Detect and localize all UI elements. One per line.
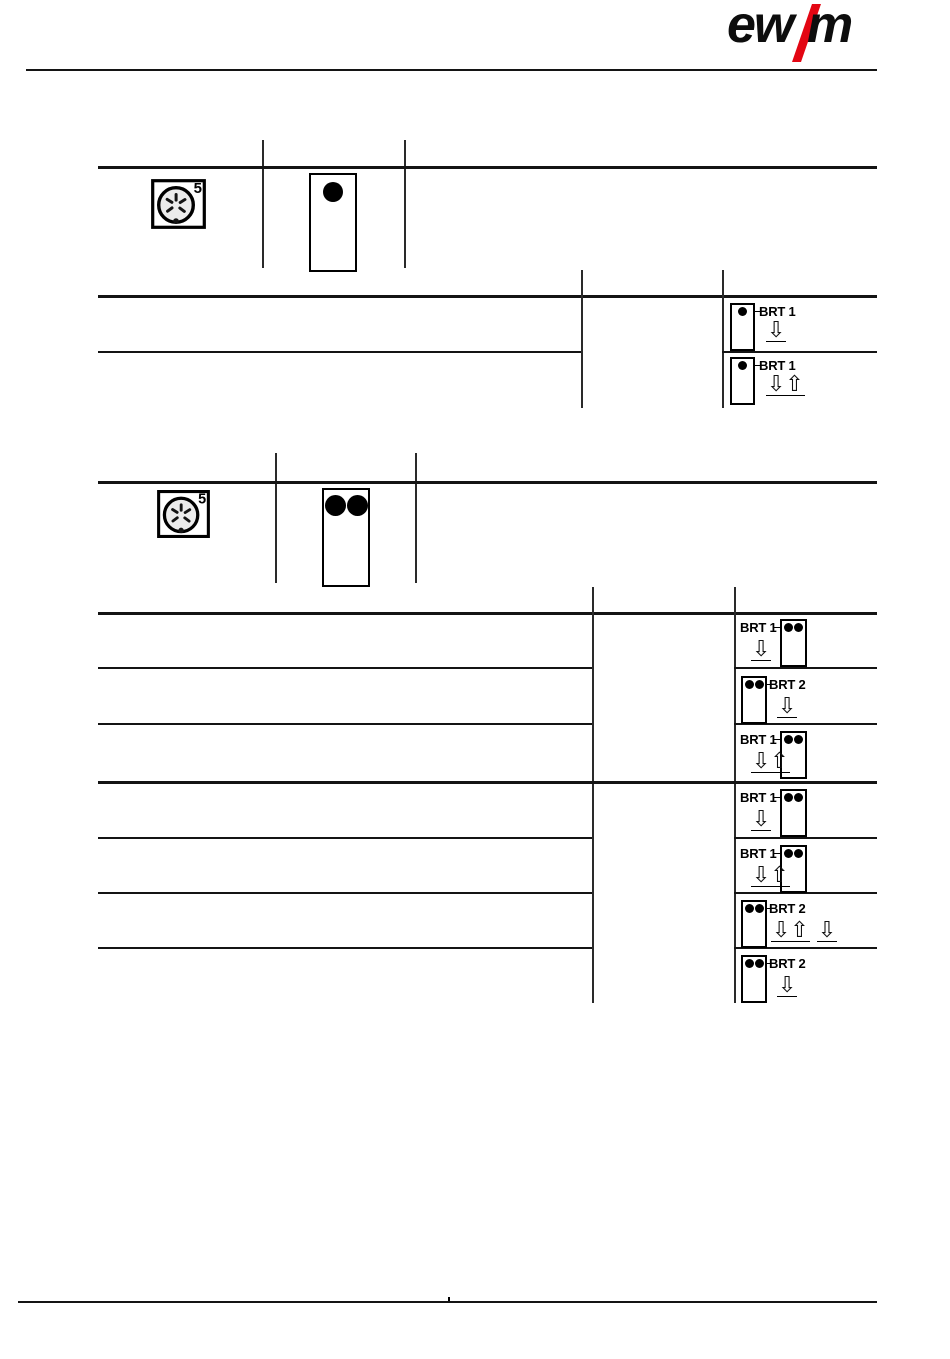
brt-label: BRT 1 xyxy=(759,304,796,319)
table-rule xyxy=(98,295,877,298)
indicator-row: BRT 1 ⇩ xyxy=(740,789,890,841)
arrow-row: ⇩ xyxy=(751,810,771,831)
torch-button-box xyxy=(730,357,755,405)
led-dot-icon xyxy=(784,849,793,858)
column-divider xyxy=(592,587,594,1003)
din-connector-5pin-icon: 5 xyxy=(157,488,210,540)
table-top-rule xyxy=(98,166,877,169)
led-dot-icon xyxy=(755,904,764,913)
led-dot-icon xyxy=(794,849,803,858)
led-dot-icon xyxy=(794,793,803,802)
brt-label: BRT 1 xyxy=(740,790,777,805)
column-divider xyxy=(415,453,417,583)
row-separator xyxy=(98,837,592,839)
led-dot-icon xyxy=(745,680,754,689)
led-dot-icon xyxy=(794,735,803,744)
torch-button-box xyxy=(780,789,807,837)
logo-text-ew: ew xyxy=(727,0,792,54)
pin-count-label: 5 xyxy=(194,180,202,197)
button-panel-two-dots xyxy=(322,488,370,587)
led-dot-icon xyxy=(784,735,793,744)
column-divider xyxy=(722,270,724,408)
indicator-row: BRT 1 ⇩ xyxy=(730,303,880,355)
indicator-row: BRT 2 ⇩ xyxy=(741,676,891,728)
led-dot-icon xyxy=(784,623,793,632)
button-dot-icon xyxy=(325,495,346,516)
row-separator xyxy=(98,892,592,894)
indicator-row: BRT 1 ⇩⇧ xyxy=(730,357,880,409)
led-dot-icon xyxy=(738,307,747,316)
row-separator xyxy=(98,351,581,353)
press-arrow-icon: ⇩ xyxy=(817,921,837,942)
arrow-row: ⇩ xyxy=(751,640,771,661)
row-separator xyxy=(98,667,592,669)
led-dot-icon xyxy=(794,623,803,632)
footer-rule xyxy=(18,1301,877,1303)
torch-button-box xyxy=(730,303,755,351)
brt-label: BRT 2 xyxy=(769,956,806,971)
column-divider xyxy=(275,453,277,583)
button-dot-icon xyxy=(323,182,343,202)
arrow-row: ⇩⇧ xyxy=(751,752,790,773)
column-divider xyxy=(581,270,583,408)
torch-button-box xyxy=(741,955,767,1003)
button-panel-one-dot xyxy=(309,173,357,272)
press-release-arrow-icon: ⇩⇧ xyxy=(751,866,790,887)
press-arrow-icon: ⇩ xyxy=(766,321,786,342)
header-rule xyxy=(26,69,877,71)
button-dot-icon xyxy=(347,495,368,516)
brt-label: BRT 2 xyxy=(769,677,806,692)
brt-label: BRT 1 xyxy=(740,846,777,861)
press-arrow-icon: ⇩ xyxy=(777,976,797,997)
column-divider xyxy=(404,140,406,268)
indicator-row: BRT 2 ⇩⇧ ⇩ xyxy=(741,900,891,952)
press-release-arrow-icon: ⇩⇧ xyxy=(771,921,810,942)
led-dot-icon xyxy=(745,904,754,913)
arrow-row: ⇩ xyxy=(777,697,797,718)
indicator-row: BRT 1 ⇩⇧ xyxy=(740,845,890,897)
arrow-row: ⇩ xyxy=(766,321,786,342)
led-dot-icon xyxy=(784,793,793,802)
press-arrow-icon: ⇩ xyxy=(777,697,797,718)
led-dot-icon xyxy=(755,680,764,689)
manual-page: ew m 5 BRT 1 ⇩ xyxy=(0,0,950,1359)
brt-label: BRT 1 xyxy=(740,620,777,635)
ewm-logo: ew m xyxy=(703,4,883,66)
pin-count-label: 5 xyxy=(198,491,206,507)
torch-button-box xyxy=(741,676,767,724)
brt-label: BRT 2 xyxy=(769,901,806,916)
press-arrow-icon: ⇩ xyxy=(751,640,771,661)
indicator-row: BRT 2 ⇩ xyxy=(741,955,891,1007)
torch-button-box xyxy=(780,619,807,667)
logo-text-m: m xyxy=(807,0,851,54)
row-separator xyxy=(98,947,592,949)
brt-label: BRT 1 xyxy=(759,358,796,373)
table-rule xyxy=(98,612,877,615)
led-dot-icon xyxy=(745,959,754,968)
table-top-rule xyxy=(98,481,877,484)
brt-label: BRT 1 xyxy=(740,732,777,747)
arrow-row: ⇩ xyxy=(777,976,797,997)
column-divider xyxy=(262,140,264,268)
arrow-row: ⇩⇧ xyxy=(766,375,805,396)
indicator-row: BRT 1 ⇩ xyxy=(740,619,890,671)
arrow-row: ⇩⇧ xyxy=(751,866,790,887)
torch-button-box xyxy=(741,900,767,948)
press-release-arrow-icon: ⇩⇧ xyxy=(751,752,790,773)
row-separator xyxy=(98,723,592,725)
led-dot-icon xyxy=(755,959,764,968)
din-connector-5pin-icon: 5 xyxy=(151,179,206,229)
press-arrow-icon: ⇩ xyxy=(751,810,771,831)
press-release-arrow-icon: ⇩⇧ xyxy=(766,375,805,396)
column-divider xyxy=(734,587,736,1003)
led-dot-icon xyxy=(738,361,747,370)
arrow-row: ⇩⇧ ⇩ xyxy=(771,921,837,942)
indicator-row: BRT 1 ⇩⇧ xyxy=(740,731,890,783)
